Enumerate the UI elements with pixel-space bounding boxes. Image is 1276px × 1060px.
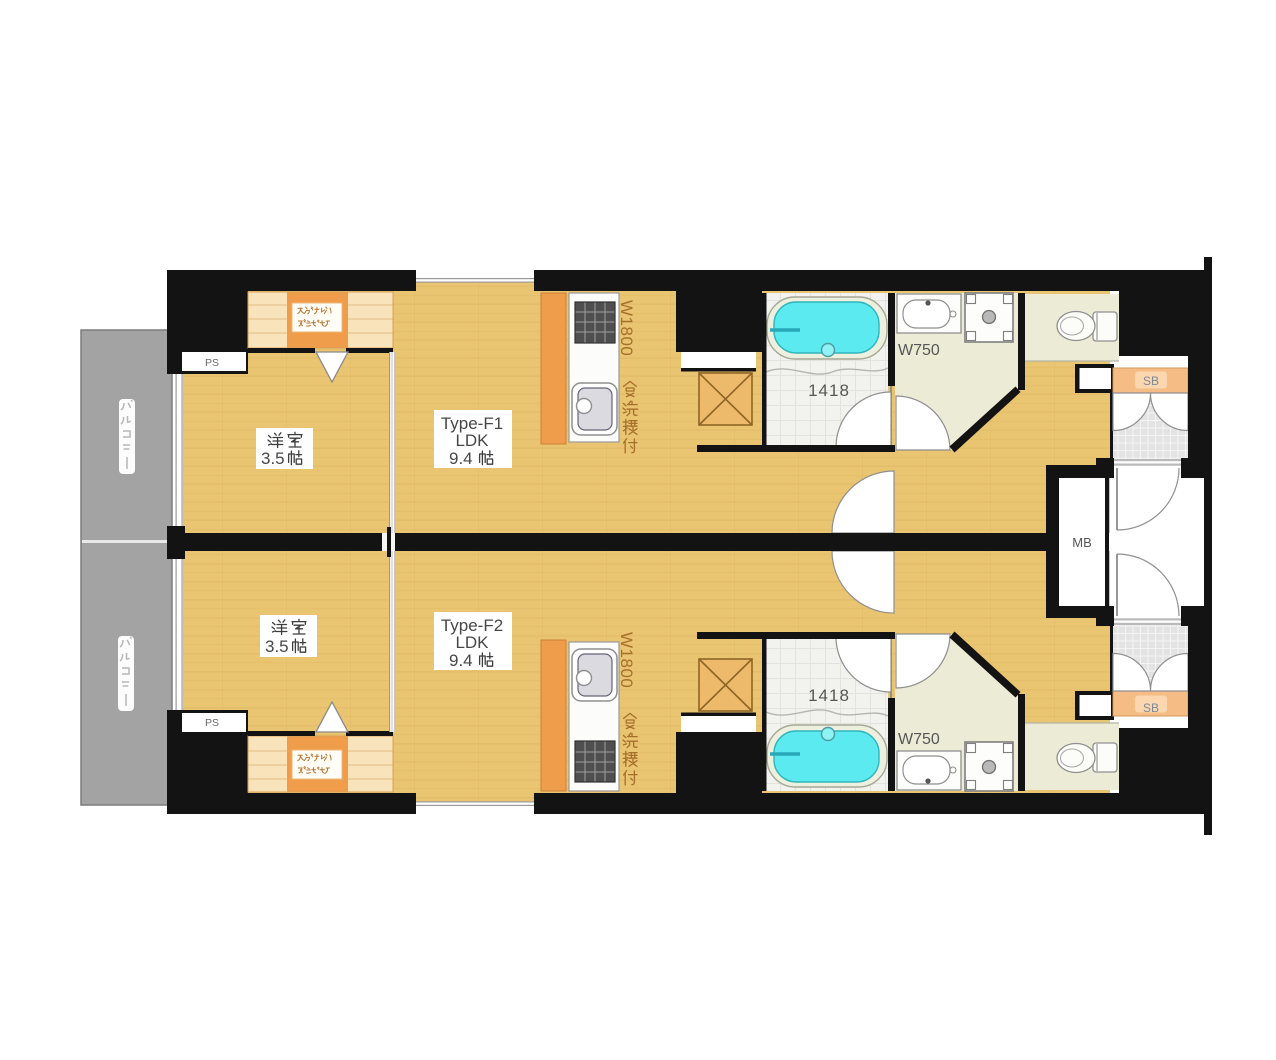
svg-text:SB: SB [1143, 701, 1159, 715]
svg-text:SB: SB [1143, 374, 1159, 388]
svg-text:W1800: W1800 [617, 632, 636, 688]
svg-text:LDK: LDK [455, 633, 489, 652]
svg-text:W750: W750 [898, 731, 940, 748]
svg-text:LDK: LDK [455, 431, 489, 450]
svg-text:1418: 1418 [808, 381, 850, 400]
svg-text:9.4: 9.4 [449, 449, 473, 468]
svg-text:PS: PS [205, 717, 219, 729]
svg-text:W750: W750 [898, 342, 940, 359]
svg-text:PS: PS [205, 357, 219, 369]
svg-text:W1800: W1800 [617, 300, 636, 356]
svg-text:1418: 1418 [808, 686, 850, 705]
svg-text:9.4: 9.4 [449, 651, 473, 670]
svg-text:3.5: 3.5 [265, 637, 289, 656]
svg-text:3.5: 3.5 [261, 449, 285, 468]
svg-text:MB: MB [1072, 535, 1092, 550]
